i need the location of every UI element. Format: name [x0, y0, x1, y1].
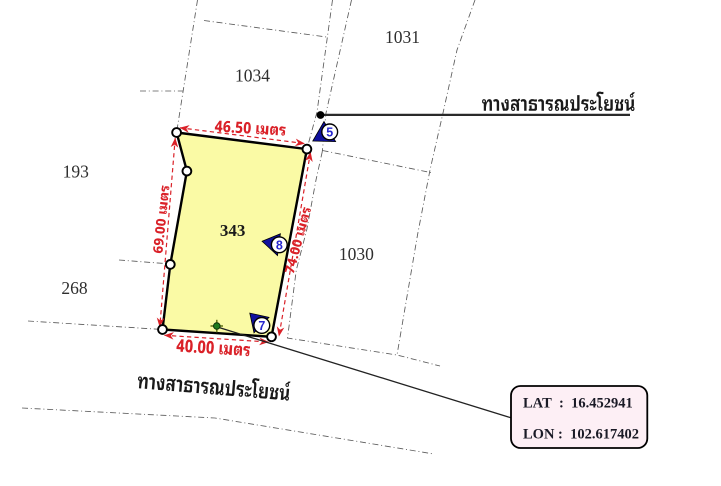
svg-text:LAT : 16.452941: LAT : 16.452941: [523, 396, 633, 412]
svg-text:268: 268: [61, 278, 88, 298]
svg-text:1034: 1034: [235, 66, 270, 86]
svg-text:7: 7: [258, 319, 265, 333]
svg-text:5: 5: [326, 125, 333, 139]
svg-text:193: 193: [63, 162, 90, 182]
svg-text:1031: 1031: [385, 27, 420, 47]
svg-text:LON : 102.617402: LON : 102.617402: [523, 426, 639, 442]
svg-text:1030: 1030: [339, 244, 374, 264]
svg-text:8: 8: [276, 238, 283, 252]
svg-text:343: 343: [220, 221, 246, 240]
